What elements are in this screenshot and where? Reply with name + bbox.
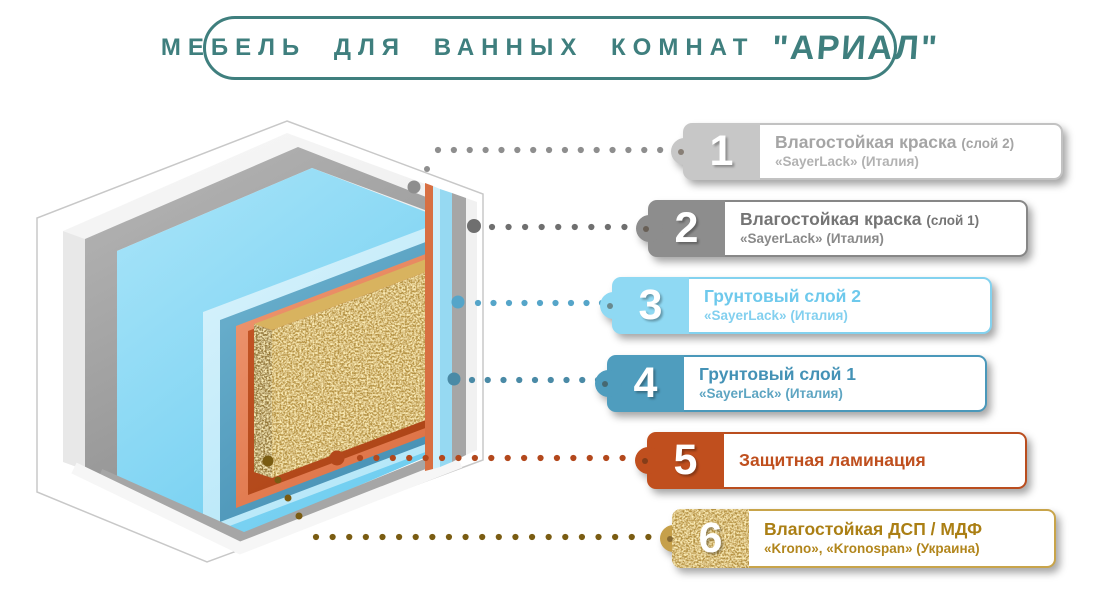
page-title-banner: МЕБЕЛЬ ДЛЯ ВАННЫХ КОМНАТ "АРИАЛ" xyxy=(203,16,897,80)
callout-3-number: 3 xyxy=(639,284,663,327)
callout-3-pin-icon xyxy=(607,303,613,309)
callout-2-note: (слой 1) xyxy=(926,213,979,228)
callout-1-note: (слой 2) xyxy=(961,136,1014,151)
brand-name: "АРИАЛ" xyxy=(771,29,940,68)
callout-5-number: 5 xyxy=(674,439,698,482)
callout-5-title: Защитная ламинация xyxy=(739,450,926,470)
page-title: МЕБЕЛЬ ДЛЯ ВАННЫХ КОМНАТ xyxy=(161,34,755,62)
callout-4-title: Грунтовый слой 1 xyxy=(699,364,856,384)
lamination-right-strip xyxy=(425,183,433,471)
callout-1-body: Влагостойкая краска (слой 2) «SayerLack»… xyxy=(760,123,1063,180)
callout-1-subtitle: «SayerLack» (Италия) xyxy=(775,154,1061,170)
paint2-right-strip xyxy=(466,198,477,455)
callout-layer-1: 1 Влагостойкая краска (слой 2) «SayerLac… xyxy=(683,123,1063,180)
callout-5-number-tab: 5 xyxy=(647,432,724,489)
callout-4-pin-icon xyxy=(602,381,608,387)
callout-1-connector-bump xyxy=(671,138,698,165)
callout-5-body: Защитная ламинация xyxy=(724,432,1027,489)
callout-2-connector-bump xyxy=(636,215,663,242)
callout-layer-2: 2 Влагостойкая краска (слой 1) «SayerLac… xyxy=(648,200,1028,257)
callout-2-title: Влагостойкая краска xyxy=(740,209,922,229)
infographic-page: МЕБЕЛЬ ДЛЯ ВАННЫХ КОМНАТ "АРИАЛ" 1 Влаго… xyxy=(0,0,1100,604)
callout-1-number-tab: 1 xyxy=(683,123,760,180)
callout-6-body: Влагостойкая ДСП / МДФ «Krono», «Kronosp… xyxy=(749,509,1056,568)
callout-1-pin-icon xyxy=(678,149,684,155)
callout-1-number: 1 xyxy=(710,130,734,173)
callout-6-title: Влагостойкая ДСП / МДФ xyxy=(764,519,982,539)
callout-4-number-tab: 4 xyxy=(607,355,684,412)
callout-4-subtitle: «SayerLack» (Италия) xyxy=(699,386,985,402)
callout-3-body: Грунтовый слой 2 «SayerLack» (Италия) xyxy=(689,277,992,334)
callout-6-subtitle: «Krono», «Kronospan» (Украина) xyxy=(764,541,1054,557)
callout-4-number: 4 xyxy=(634,362,658,405)
callout-6-number: 6 xyxy=(699,517,723,560)
callout-2-subtitle: «SayerLack» (Италия) xyxy=(740,231,1026,247)
primer2-inner-right-strip xyxy=(433,186,440,469)
callout-layer-6: 6 Влагостойкая ДСП / МДФ «Krono», «Krono… xyxy=(672,509,1056,568)
callout-6-pin-icon xyxy=(667,536,673,542)
callout-6-number-tab: 6 xyxy=(672,509,749,568)
callout-layer-4: 4 Грунтовый слой 1 «SayerLack» (Италия) xyxy=(607,355,987,412)
callout-2-pin-icon xyxy=(643,226,649,232)
callout-2-number: 2 xyxy=(675,207,699,250)
callout-4-connector-bump xyxy=(595,370,622,397)
callout-3-subtitle: «SayerLack» (Италия) xyxy=(704,308,990,324)
callout-2-body: Влагостойкая краска (слой 1) «SayerLack»… xyxy=(725,200,1028,257)
callout-5-connector-bump xyxy=(635,447,662,474)
paint1-right-strip xyxy=(452,193,466,462)
primer2-right-strip xyxy=(440,189,452,467)
callout-3-number-tab: 3 xyxy=(612,277,689,334)
chipboard-side-edge xyxy=(254,324,272,478)
callout-layer-5: 5 Защитная ламинация xyxy=(647,432,1027,489)
callout-3-title: Грунтовый слой 2 xyxy=(704,286,861,306)
callout-2-number-tab: 2 xyxy=(648,200,725,257)
callout-3-connector-bump xyxy=(600,292,627,319)
callout-5-pin-icon xyxy=(642,458,648,464)
callout-1-title: Влагостойкая краска xyxy=(775,132,957,152)
callout-layer-3: 3 Грунтовый слой 2 «SayerLack» (Италия) xyxy=(612,277,992,334)
paint2-left-face xyxy=(63,231,85,470)
callout-4-body: Грунтовый слой 1 «SayerLack» (Италия) xyxy=(684,355,987,412)
